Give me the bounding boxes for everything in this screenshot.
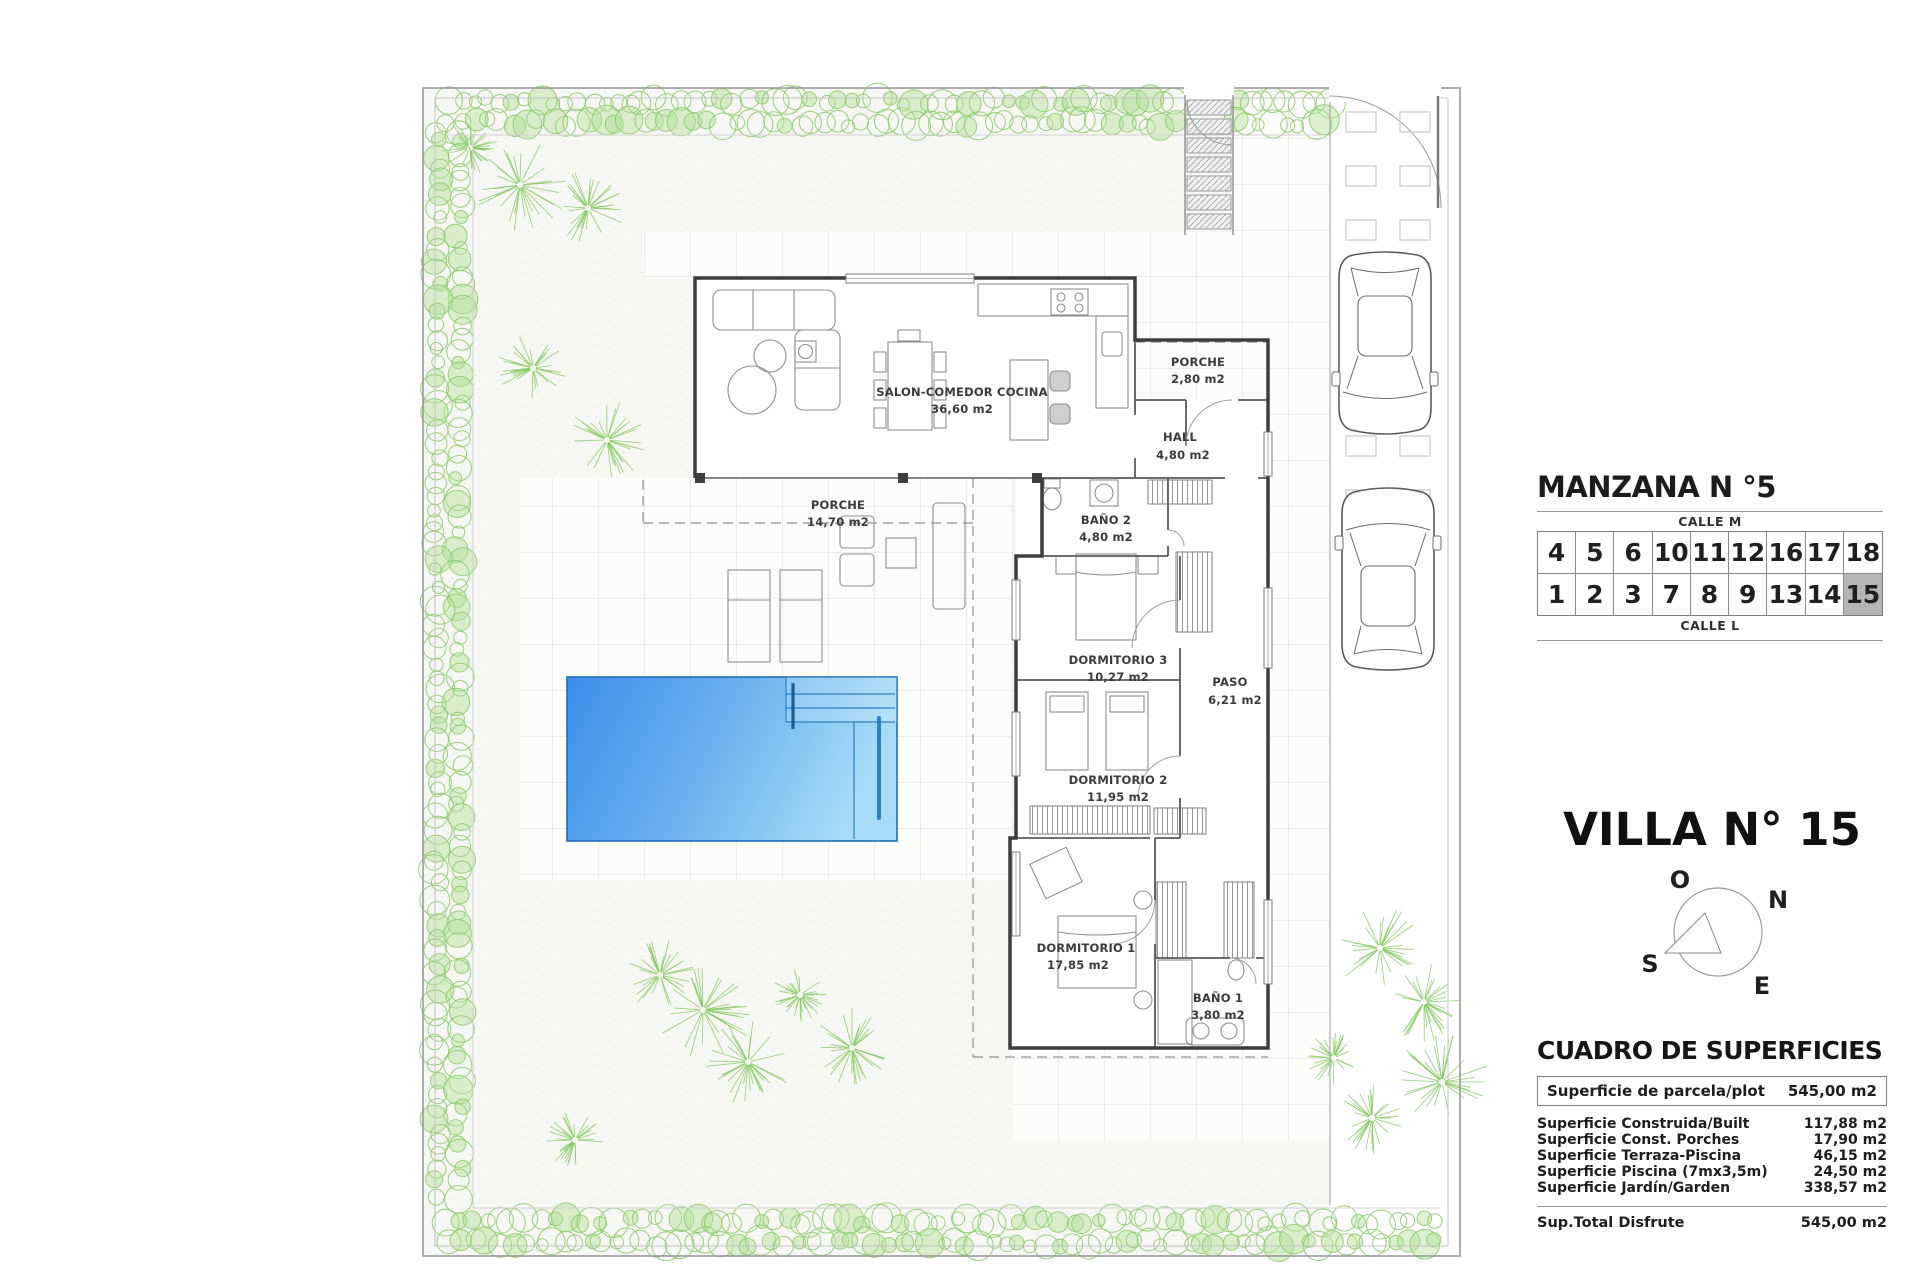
surface-label: Superficie Terraza-Piscina: [1537, 1149, 1741, 1165]
lot-cell: 16: [1767, 532, 1805, 573]
surface-label: Superficie Jardín/Garden: [1537, 1181, 1730, 1197]
surface-value: 545,00 m2: [1788, 1082, 1877, 1100]
lot-cell: 12: [1729, 532, 1767, 573]
room-label-salon: SALON-COMEDOR COCINA: [876, 385, 1047, 399]
surface-row: Superficie Jardín/Garden338,57 m2: [1537, 1181, 1887, 1197]
villa-title: VILLA N° 15: [1537, 803, 1887, 856]
surface-row: Superficie Terraza-Piscina46,15 m2: [1537, 1149, 1887, 1165]
room-label-dormitorio2: DORMITORIO 2: [1069, 773, 1168, 787]
room-area-dormitorio1: 17,85 m2: [1047, 958, 1109, 972]
wardrobe-icon: [1148, 480, 1212, 504]
room-area-bano2: 4,80 m2: [1079, 530, 1133, 544]
surface-label: Sup.Total Disfrute: [1537, 1215, 1685, 1231]
room-area-dormitorio2: 11,95 m2: [1087, 790, 1149, 804]
surface-value: 46,15 m2: [1814, 1149, 1888, 1165]
lot-cell: 18: [1844, 532, 1882, 573]
surfaces-title: CUADRO DE SUPERFICIES: [1537, 1036, 1887, 1065]
street-label-top: CALLE M: [1537, 514, 1883, 529]
room-label-porche2: PORCHE: [1171, 355, 1225, 369]
wardrobe-icon: [1030, 806, 1150, 834]
room-label-dormitorio1: DORMITORIO 1: [1037, 941, 1136, 955]
wardrobe-icon: [1224, 882, 1254, 958]
surface-total-row: Sup.Total Disfrute 545,00 m2: [1537, 1215, 1887, 1231]
car-icon: [1332, 252, 1438, 434]
room-area-hall: 4,80 m2: [1156, 448, 1210, 462]
car-icon: [1335, 488, 1441, 670]
divider: [1537, 640, 1883, 641]
compass-west: O: [1670, 866, 1690, 894]
compass-east: E: [1754, 972, 1770, 1000]
surface-label: Superficie Const. Porches: [1537, 1133, 1739, 1149]
surfaces-block: CUADRO DE SUPERFICIES Superficie de parc…: [1537, 1036, 1887, 1231]
surface-label: Superficie de parcela/plot: [1547, 1082, 1765, 1100]
room-label-paso: PASO: [1212, 675, 1247, 689]
compass-south: S: [1641, 950, 1658, 978]
divider: [1537, 1206, 1887, 1207]
lot-cell: 17: [1806, 532, 1844, 573]
lot-cell: 1: [1538, 573, 1576, 615]
lot-cell: 6: [1614, 532, 1652, 573]
divider: [1537, 511, 1883, 512]
room-label-hall: HALL: [1163, 430, 1197, 444]
surface-plot-row: Superficie de parcela/plot 545,00 m2: [1537, 1076, 1887, 1106]
lot-cell: 8: [1691, 573, 1729, 615]
lot-cell: 14: [1806, 573, 1844, 615]
lot-cell: 4: [1538, 532, 1576, 573]
surface-value: 17,90 m2: [1814, 1133, 1888, 1149]
room-area-porche2: 2,80 m2: [1171, 372, 1225, 386]
lot-cell: 7: [1653, 573, 1691, 615]
manzana-title: MANZANA N °5: [1537, 470, 1883, 504]
lot-cell: 5: [1576, 532, 1614, 573]
lot-cell: 9: [1729, 573, 1767, 615]
room-area-porche14: 14,70 m2: [807, 515, 869, 529]
lot-cell: 15: [1844, 573, 1882, 615]
room-label-dormitorio3: DORMITORIO 3: [1069, 653, 1168, 667]
surface-label: Superficie Construida/Built: [1537, 1117, 1749, 1133]
lot-cell: 13: [1767, 573, 1805, 615]
floor-plan-sheet: SALON-COMEDOR COCINA 36,60 m2 PORCHE 2,8…: [0, 0, 1920, 1280]
room-label-bano2: BAÑO 2: [1081, 512, 1131, 527]
room-area-bano1: 3,80 m2: [1191, 1008, 1245, 1022]
surface-row: Superficie Piscina (7mx3,5m)24,50 m2: [1537, 1165, 1887, 1181]
lot-cell: 11: [1691, 532, 1729, 573]
manzana-block: MANZANA N °5 CALLE M 4561011121617181237…: [1537, 470, 1883, 641]
street-label-bottom: CALLE L: [1537, 618, 1883, 633]
lot-cell: 2: [1576, 573, 1614, 615]
room-label-porche14: PORCHE: [811, 498, 865, 512]
surface-value: 338,57 m2: [1804, 1181, 1887, 1197]
swimming-pool: [567, 677, 897, 841]
compass-icon: O N S E: [1630, 860, 1805, 1005]
surface-row: Superficie Const. Porches17,90 m2: [1537, 1133, 1887, 1149]
surface-value: 117,88 m2: [1804, 1117, 1887, 1133]
compass-north: N: [1768, 886, 1788, 914]
lot-cell: 10: [1653, 532, 1691, 573]
surface-rows: Superficie Construida/Built117,88 m2Supe…: [1537, 1117, 1887, 1197]
room-area-paso: 6,21 m2: [1208, 693, 1262, 707]
wardrobe-icon: [1156, 882, 1186, 958]
surface-value: 545,00 m2: [1801, 1215, 1887, 1231]
lot-cell: 3: [1614, 573, 1652, 615]
room-area-dormitorio3: 10,27 m2: [1087, 670, 1149, 684]
lot-grid: 456101112161718123789131415: [1537, 531, 1883, 616]
surface-label: Superficie Piscina (7mx3,5m): [1537, 1165, 1768, 1181]
wardrobe-icon: [1176, 552, 1212, 632]
room-area-salon: 36,60 m2: [931, 402, 993, 416]
room-label-bano1: BAÑO 1: [1193, 990, 1243, 1005]
surface-row: Superficie Construida/Built117,88 m2: [1537, 1117, 1887, 1133]
surface-value: 24,50 m2: [1814, 1165, 1888, 1181]
